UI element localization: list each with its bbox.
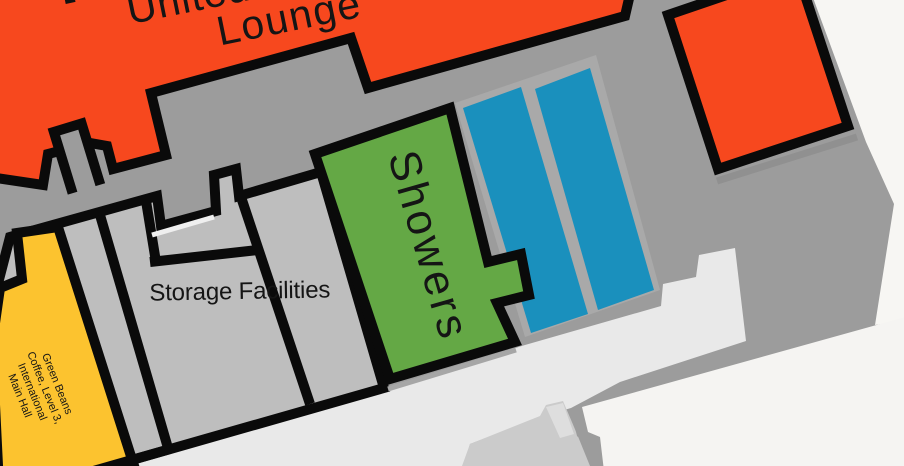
svg-text:Storage Facilities: Storage Facilities [149, 276, 330, 306]
